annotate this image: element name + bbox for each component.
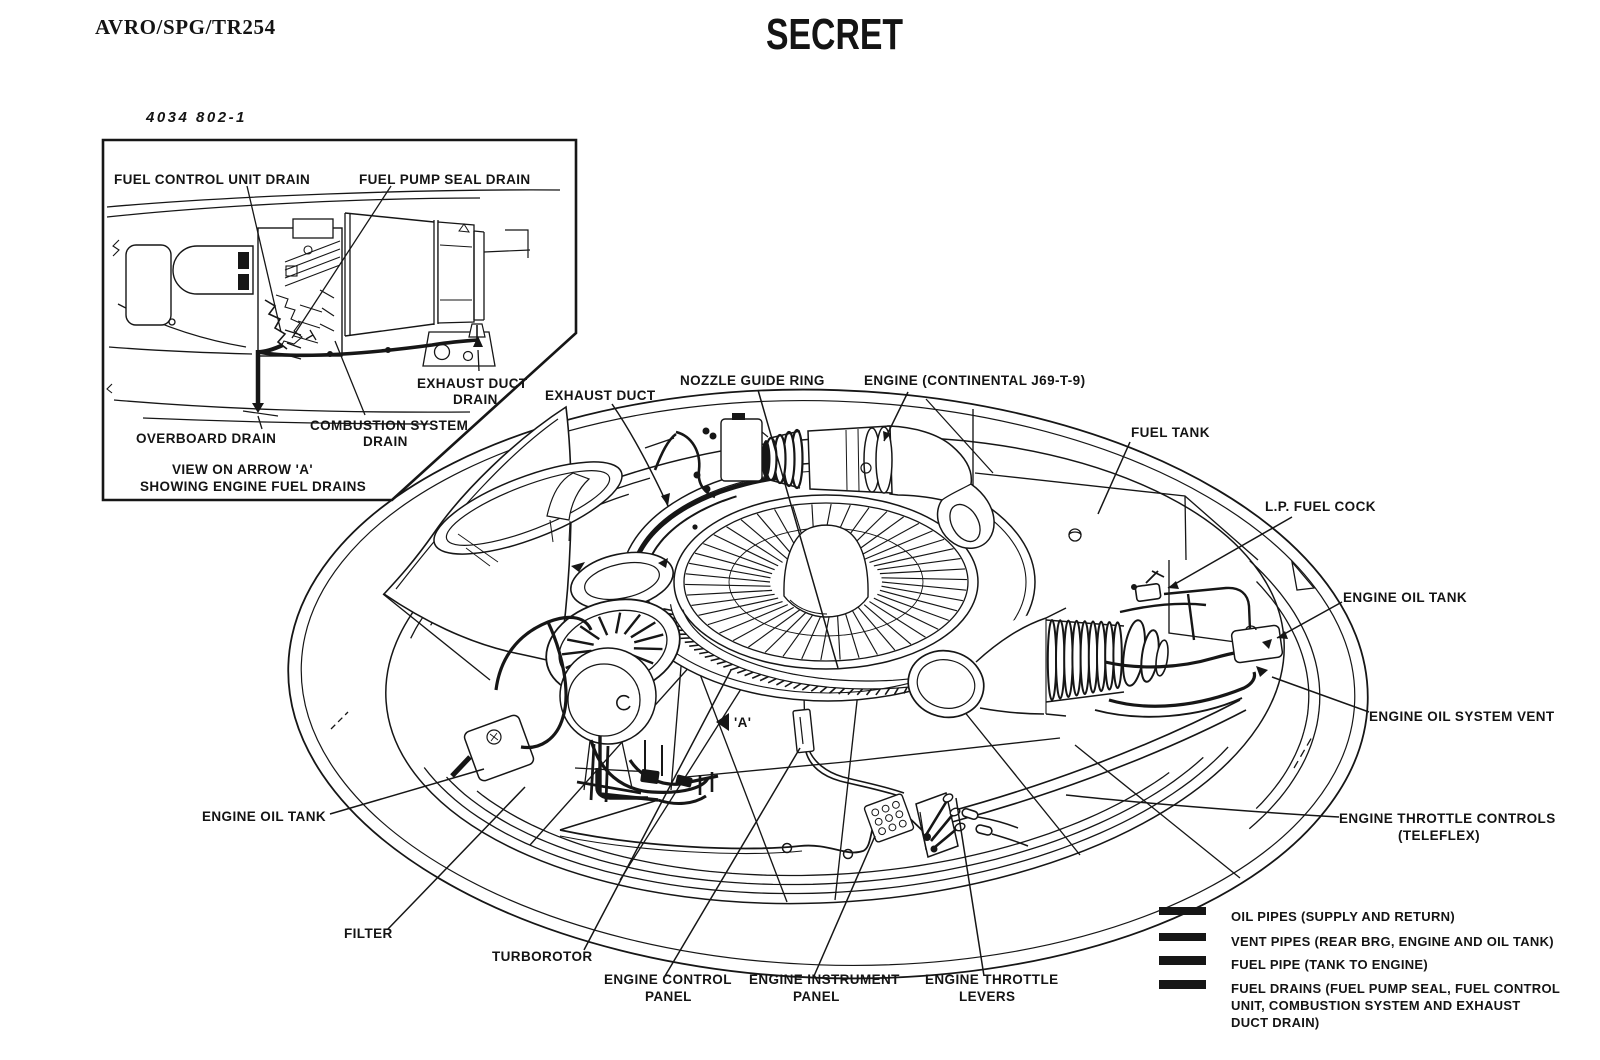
svg-text:PANEL: PANEL — [645, 989, 692, 1004]
svg-text:DRAIN: DRAIN — [363, 434, 408, 449]
svg-text:AVRO/SPG/TR254: AVRO/SPG/TR254 — [95, 15, 276, 39]
svg-text:ENGINE THROTTLE: ENGINE THROTTLE — [925, 972, 1059, 987]
svg-text:DRAIN: DRAIN — [453, 392, 498, 407]
svg-text:FUEL CONTROL UNIT DRAIN: FUEL CONTROL UNIT DRAIN — [114, 172, 310, 187]
svg-text:ENGINE OIL TANK: ENGINE OIL TANK — [202, 809, 326, 824]
svg-text:FUEL TANK: FUEL TANK — [1131, 425, 1210, 440]
svg-text:FUEL PIPE (TANK TO ENGINE): FUEL PIPE (TANK TO ENGINE) — [1231, 957, 1428, 972]
svg-text:NOZZLE GUIDE RING: NOZZLE GUIDE RING — [680, 373, 825, 388]
svg-text:(TELEFLEX): (TELEFLEX) — [1398, 828, 1480, 843]
svg-text:OVERBOARD DRAIN: OVERBOARD DRAIN — [136, 431, 276, 446]
svg-text:ENGINE THROTTLE CONTROLS: ENGINE THROTTLE CONTROLS — [1339, 811, 1556, 826]
svg-text:EXHAUST DUCT: EXHAUST DUCT — [545, 388, 656, 403]
svg-text:VENT PIPES (REAR BRG, ENGINE A: VENT PIPES (REAR BRG, ENGINE AND OIL TAN… — [1231, 934, 1554, 949]
svg-text:FILTER: FILTER — [344, 926, 393, 941]
svg-text:PANEL: PANEL — [793, 989, 840, 1004]
svg-text:UNIT, COMBUSTION SYSTEM AND EX: UNIT, COMBUSTION SYSTEM AND EXHAUST — [1231, 998, 1521, 1013]
svg-text:TURBOROTOR: TURBOROTOR — [492, 949, 593, 964]
svg-text:'A': 'A' — [734, 715, 751, 730]
svg-text:ENGINE CONTROL: ENGINE CONTROL — [604, 972, 732, 987]
svg-text:SECRET: SECRET — [766, 10, 903, 59]
svg-text:EXHAUST DUCT: EXHAUST DUCT — [417, 376, 528, 391]
svg-text:L.P. FUEL COCK: L.P. FUEL COCK — [1265, 499, 1376, 514]
svg-text:COMBUSTION SYSTEM: COMBUSTION SYSTEM — [310, 418, 468, 433]
svg-text:ENGINE (CONTINENTAL J69-T-9): ENGINE (CONTINENTAL J69-T-9) — [864, 373, 1085, 388]
svg-text:SHOWING ENGINE FUEL DRAINS: SHOWING ENGINE FUEL DRAINS — [140, 479, 366, 494]
svg-text:FUEL PUMP SEAL DRAIN: FUEL PUMP SEAL DRAIN — [359, 172, 531, 187]
svg-text:4034 802-1: 4034 802-1 — [145, 109, 247, 126]
svg-text:LEVERS: LEVERS — [959, 989, 1015, 1004]
svg-text:FUEL DRAINS (FUEL PUMP SEAL, F: FUEL DRAINS (FUEL PUMP SEAL, FUEL CONTRO… — [1231, 981, 1560, 996]
svg-text:DUCT DRAIN): DUCT DRAIN) — [1231, 1015, 1320, 1030]
svg-text:OIL PIPES (SUPPLY AND RETURN): OIL PIPES (SUPPLY AND RETURN) — [1231, 909, 1455, 924]
svg-text:ENGINE OIL TANK: ENGINE OIL TANK — [1343, 590, 1467, 605]
svg-text:ENGINE INSTRUMENT: ENGINE INSTRUMENT — [749, 972, 900, 987]
svg-text:ENGINE OIL SYSTEM VENT: ENGINE OIL SYSTEM VENT — [1369, 709, 1555, 724]
svg-text:VIEW ON ARROW 'A': VIEW ON ARROW 'A' — [172, 462, 313, 477]
